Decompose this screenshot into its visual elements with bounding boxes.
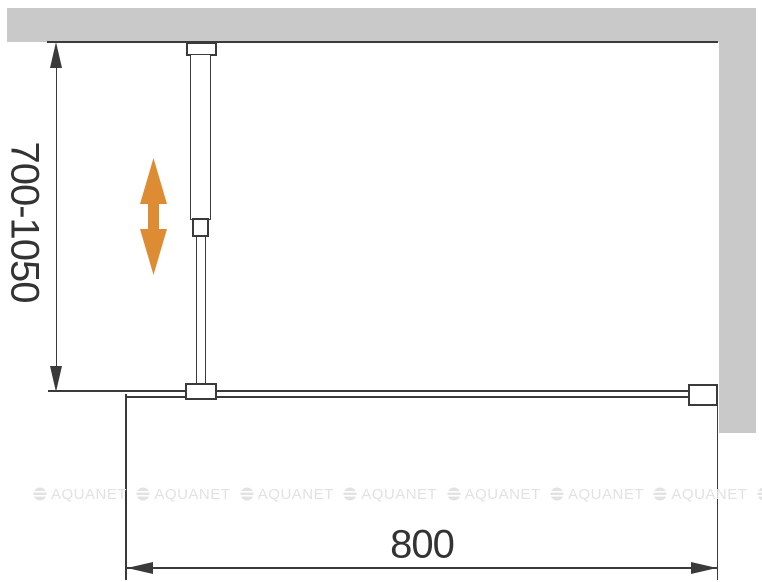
watermark-text: AQUANET — [671, 486, 747, 503]
glass-panel-top-line — [48, 390, 689, 392]
watermark: AQUANET — [653, 486, 747, 502]
width-dimension-arrow-right-icon — [691, 562, 717, 574]
aquanet-logo-icon — [550, 487, 564, 501]
watermark-text: AQUANET — [51, 486, 127, 503]
aquanet-logo-icon — [240, 487, 254, 501]
watermark-text: AQUANET — [465, 486, 541, 503]
aquanet-logo-icon — [136, 487, 150, 501]
support-bar-collar — [192, 218, 209, 237]
aquanet-logo-icon — [447, 487, 461, 501]
watermark-text: AQUANET — [154, 486, 230, 503]
aquanet-logo-icon — [653, 487, 667, 501]
watermark-text: AQUANET — [258, 486, 334, 503]
height-dimension-arrow-up-icon — [50, 42, 62, 68]
watermark: AQUANET — [447, 486, 541, 502]
watermark: AQUANET — [343, 486, 437, 502]
aquanet-logo-icon — [757, 487, 762, 501]
aquanet-logo-icon — [343, 487, 357, 501]
watermark: AQUANET — [240, 486, 334, 502]
watermark: AQUANET — [136, 486, 230, 502]
wall-right — [719, 42, 756, 433]
watermark-text: AQUANET — [568, 486, 644, 503]
diagram-canvas: 700-1050 800 AQUANETAQUANETAQUANETAQUANE… — [0, 0, 762, 582]
watermark: AQUANET — [550, 486, 644, 502]
watermark-text: AQUANET — [361, 486, 437, 503]
wall-profile-bracket — [688, 384, 718, 406]
width-dimension-label: 800 — [390, 523, 454, 568]
wall-top — [7, 8, 756, 42]
width-dimension-arrow-left-icon — [127, 562, 153, 574]
support-bar-lower-tube — [196, 236, 206, 384]
support-bar-upper-tube — [190, 54, 211, 220]
glass-clamp — [185, 383, 217, 400]
height-dimension-arrow-down-icon — [50, 366, 62, 392]
aquanet-logo-icon — [33, 487, 47, 501]
height-adjust-arrow-icon — [140, 158, 167, 275]
height-dimension-label: 700-1050 — [2, 141, 47, 302]
watermark: AQUANET — [33, 486, 127, 502]
wall-bottom-edge-line — [47, 41, 718, 44]
watermark: AQUANET — [757, 486, 762, 502]
height-dimension-line — [56, 52, 58, 384]
